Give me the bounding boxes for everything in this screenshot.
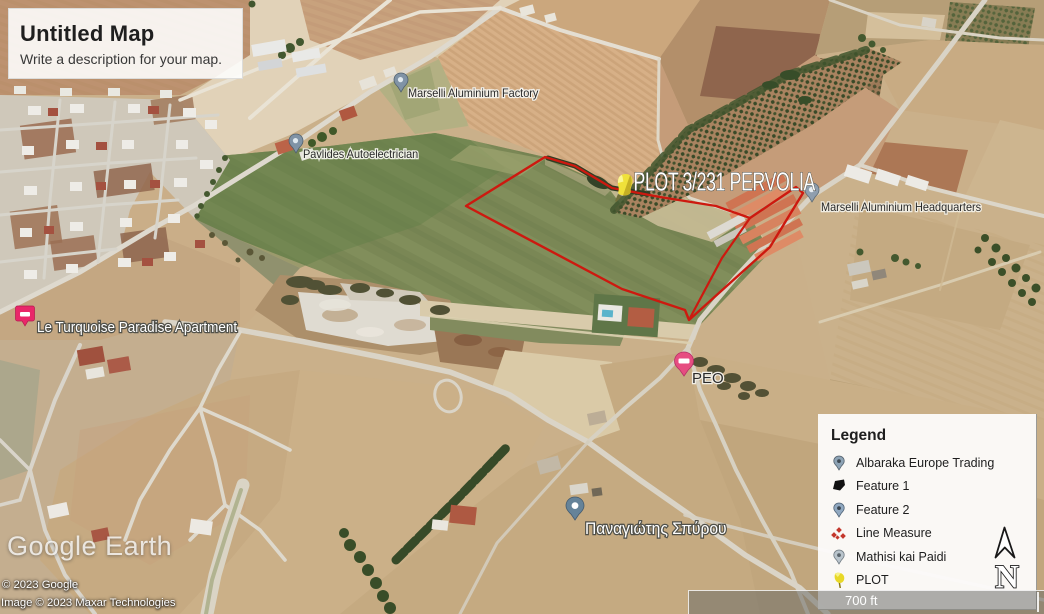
svg-text:N: N [995,560,1019,596]
